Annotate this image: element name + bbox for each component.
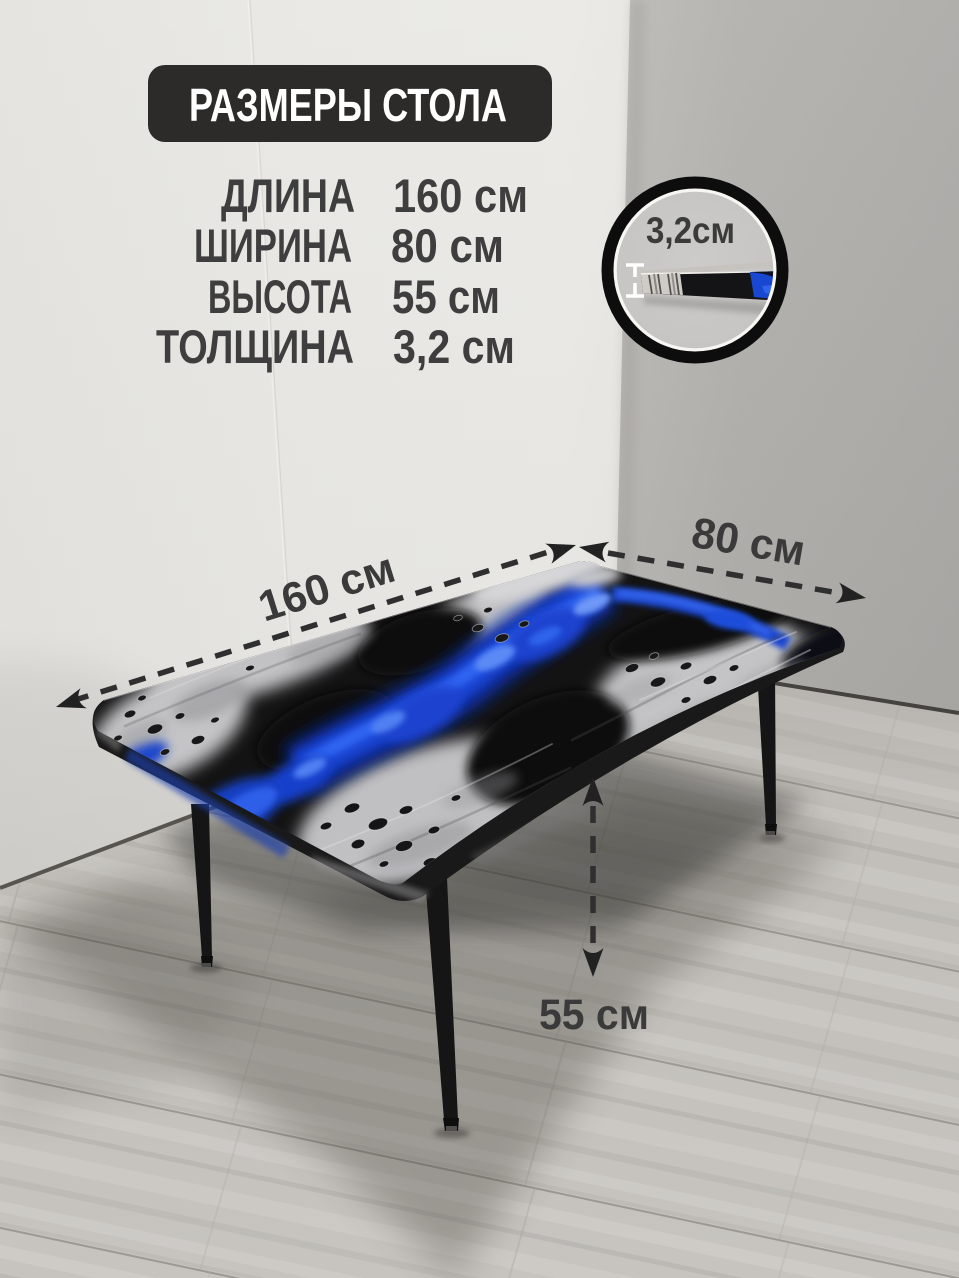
svg-text:3,2 см: 3,2 см bbox=[393, 320, 515, 373]
svg-text:ШИРИНА: ШИРИНА bbox=[194, 219, 352, 272]
svg-text:55 см: 55 см bbox=[392, 270, 500, 323]
svg-text:РАЗМЕРЫ СТОЛА: РАЗМЕРЫ СТОЛА bbox=[189, 79, 507, 131]
svg-text:ТОЛЩИНА: ТОЛЩИНА bbox=[156, 320, 354, 373]
svg-text:55 см: 55 см bbox=[539, 991, 649, 1039]
svg-text:160 см: 160 см bbox=[393, 169, 528, 222]
svg-text:ДЛИНА: ДЛИНА bbox=[221, 169, 355, 222]
svg-text:80 см: 80 см bbox=[391, 219, 504, 272]
svg-text:3,2см: 3,2см bbox=[646, 210, 735, 251]
svg-text:ВЫСОТА: ВЫСОТА bbox=[208, 270, 352, 323]
